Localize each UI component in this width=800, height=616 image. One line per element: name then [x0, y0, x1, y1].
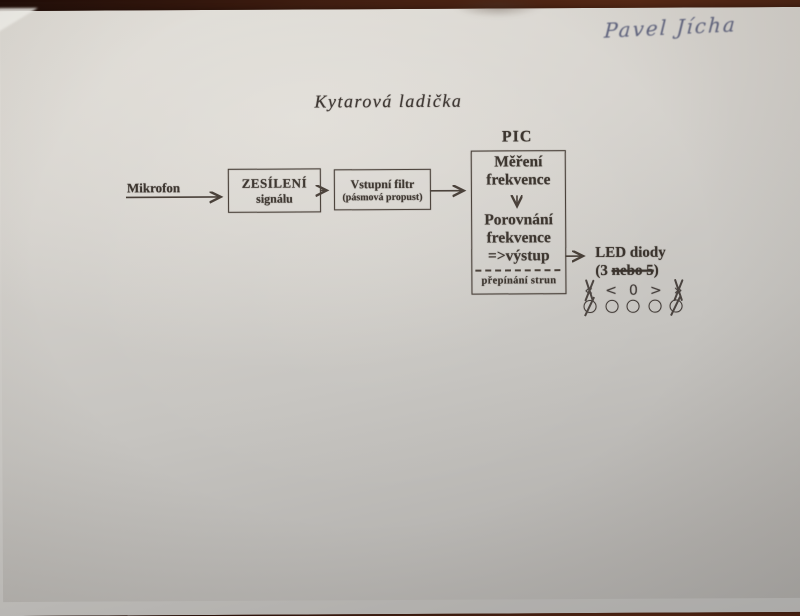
led-count-label: (3 nebo 5): [595, 263, 658, 280]
led-circle: [627, 300, 640, 313]
diagram-title: Kytarová ladička: [314, 91, 462, 113]
amplifier-box-line2: signálu: [256, 191, 293, 206]
led-circle: [605, 300, 618, 313]
paper-corner-fold: [0, 8, 38, 32]
led-circle: [670, 300, 683, 313]
pic-measure-block: Měření frekvence: [472, 153, 565, 189]
filter-box-line2: (pásmová propust): [342, 191, 422, 202]
pic-compare-line3: =>výstup: [472, 247, 565, 265]
microphone-label: Mikrofon: [127, 180, 180, 196]
led-count-struck-text: nebo 5: [612, 263, 654, 279]
led-circle: [648, 300, 661, 313]
amplifier-box: ZESÍLENÍ signálu: [228, 168, 321, 212]
pic-dashed-divider: [475, 269, 560, 271]
filter-box-line1: Vstupní filtr: [351, 176, 415, 191]
pic-chip-label: PIC: [471, 128, 564, 146]
led-count-prefix: (3: [595, 263, 611, 279]
handwritten-author-name: Pavel Jícha: [604, 10, 785, 43]
paper-edge-shadow: [452, 0, 544, 17]
pic-compare-line1: Porovnání: [472, 211, 565, 229]
pic-compare-line2: frekvence: [472, 229, 565, 247]
filter-box: Vstupní filtr (pásmová propust): [334, 169, 431, 211]
pic-measure-line1: Měření: [472, 153, 565, 171]
led-count-suffix: ): [654, 263, 659, 279]
paper-sheet: Pavel Jícha Kytarová ladička Mikrofon ZE…: [0, 7, 800, 616]
led-row: [584, 300, 683, 314]
amplifier-box-line1: ZESÍLENÍ: [242, 175, 308, 191]
page-content: Pavel Jícha Kytarová ladička Mikrofon ZE…: [0, 0, 800, 602]
tuning-symbol: <: [605, 283, 617, 299]
led-circle: [584, 300, 597, 313]
pic-string-switch-label: přepínání strun: [472, 275, 565, 286]
pic-compare-block: Porovnání frekvence =>výstup: [472, 211, 565, 265]
tuning-symbol: 0: [629, 283, 638, 299]
tuning-symbol: >: [650, 283, 662, 299]
pic-box: Měření frekvence Porovnání frekvence =>v…: [471, 150, 567, 294]
tuning-indicator-symbols: «<0>»: [584, 283, 682, 300]
led-output-label: LED diody: [595, 245, 666, 262]
pic-measure-line2: frekvence: [472, 171, 565, 189]
